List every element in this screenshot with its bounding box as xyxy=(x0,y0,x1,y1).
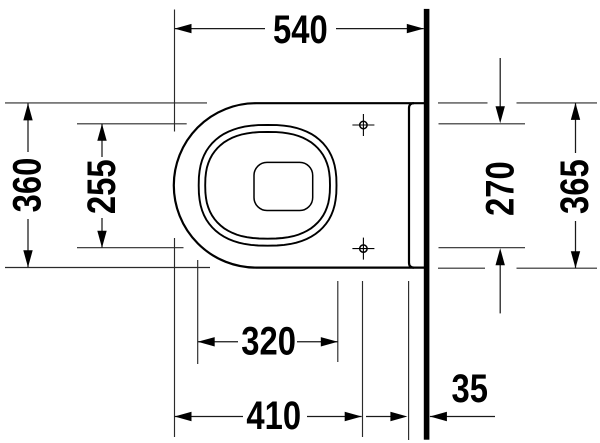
svg-text:35: 35 xyxy=(451,366,487,411)
svg-text:540: 540 xyxy=(273,7,328,52)
svg-text:255: 255 xyxy=(79,159,124,214)
svg-text:365: 365 xyxy=(552,159,597,214)
svg-text:270: 270 xyxy=(478,161,523,216)
svg-text:360: 360 xyxy=(4,158,49,213)
svg-text:320: 320 xyxy=(241,319,296,364)
svg-text:410: 410 xyxy=(246,393,301,438)
